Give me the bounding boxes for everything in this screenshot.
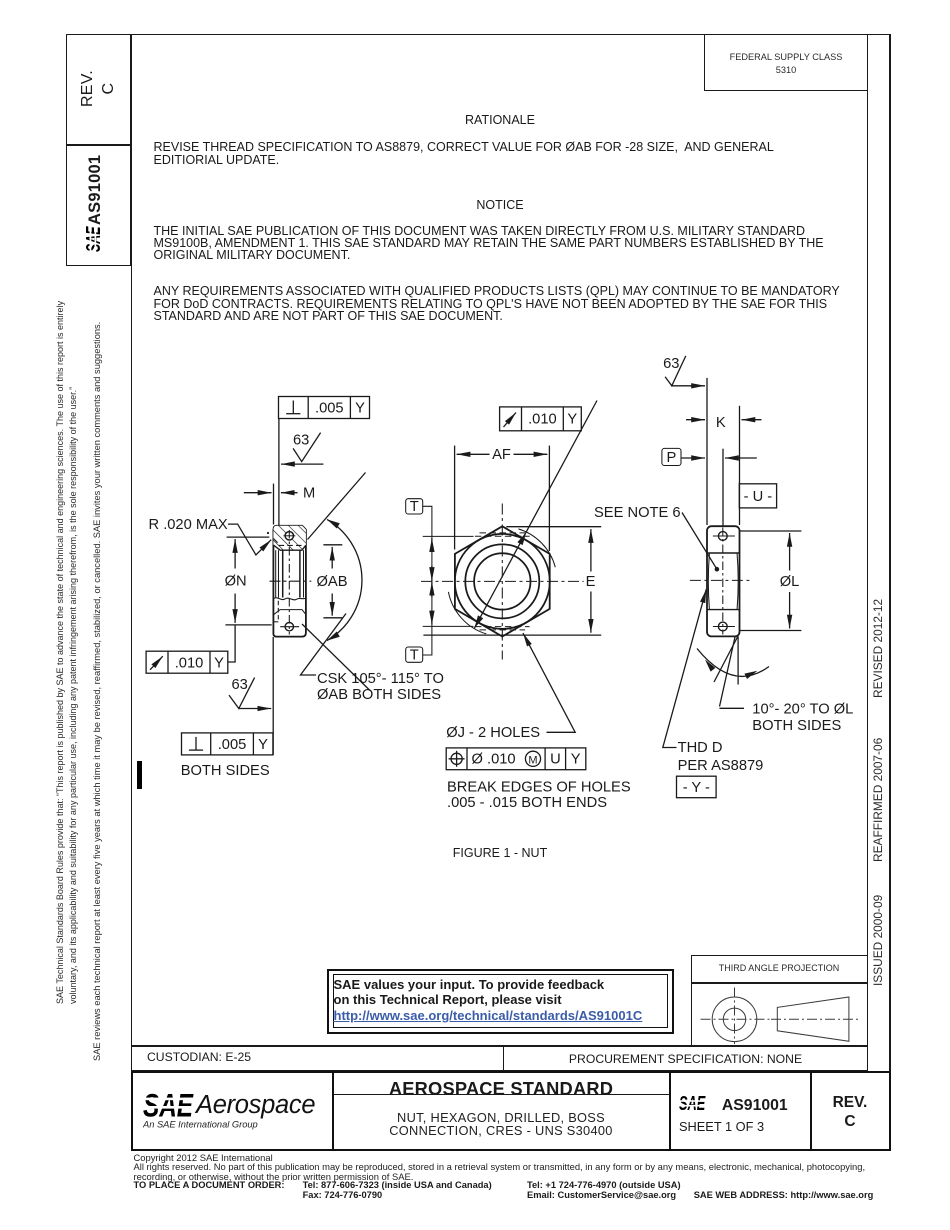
svg-text:THD D: THD D	[678, 740, 723, 756]
svg-text:M: M	[528, 754, 537, 766]
svg-text:63: 63	[293, 433, 309, 449]
svg-text:Ø .010: Ø .010	[472, 752, 516, 768]
svg-text:T: T	[410, 499, 419, 515]
svg-text:BREAK EDGES OF HOLES: BREAK EDGES OF HOLES	[447, 780, 631, 796]
svg-text:63: 63	[232, 677, 248, 693]
svg-text:Y: Y	[567, 412, 577, 428]
svg-text:- U -: - U -	[744, 489, 773, 505]
svg-text:.005 - .015 BOTH ENDS: .005 - .015 BOTH ENDS	[447, 795, 607, 811]
svg-text:ØJ - 2 HOLES: ØJ - 2 HOLES	[446, 725, 540, 741]
svg-text:K: K	[716, 415, 726, 431]
svg-text:T: T	[410, 648, 419, 664]
svg-text:M: M	[303, 486, 315, 502]
svg-text:Y: Y	[258, 737, 268, 753]
svg-text:BOTH SIDES: BOTH SIDES	[181, 763, 270, 779]
svg-text:.010: .010	[175, 655, 204, 671]
svg-text:R .020 MAX: R .020 MAX	[149, 517, 228, 533]
svg-text:BOTH SIDES: BOTH SIDES	[752, 718, 841, 734]
svg-text:Y: Y	[571, 752, 581, 768]
svg-text:63: 63	[663, 356, 679, 372]
svg-text:Y: Y	[214, 655, 224, 671]
svg-text:E: E	[586, 574, 596, 590]
svg-text:PER AS8879: PER AS8879	[678, 758, 764, 774]
svg-text:SEE NOTE 6: SEE NOTE 6	[594, 505, 681, 521]
svg-text:ØN: ØN	[225, 574, 247, 590]
svg-text:- Y -: - Y -	[683, 780, 710, 796]
svg-text:CSK 105°- 115° TO: CSK 105°- 115° TO	[317, 671, 444, 687]
svg-text:Y: Y	[355, 401, 365, 417]
svg-text:.010: .010	[528, 412, 557, 428]
svg-text:U: U	[550, 752, 561, 768]
svg-text:ØAB BOTH SIDES: ØAB BOTH SIDES	[317, 687, 441, 703]
svg-text:.005: .005	[315, 401, 344, 417]
svg-text:P: P	[667, 450, 677, 466]
svg-text:ØL: ØL	[780, 574, 800, 590]
svg-text:AF: AF	[492, 447, 511, 463]
svg-text:10°- 20° TO ØL: 10°- 20° TO ØL	[752, 701, 853, 717]
svg-text:ØAB: ØAB	[316, 574, 347, 590]
svg-text:.005: .005	[218, 737, 247, 753]
